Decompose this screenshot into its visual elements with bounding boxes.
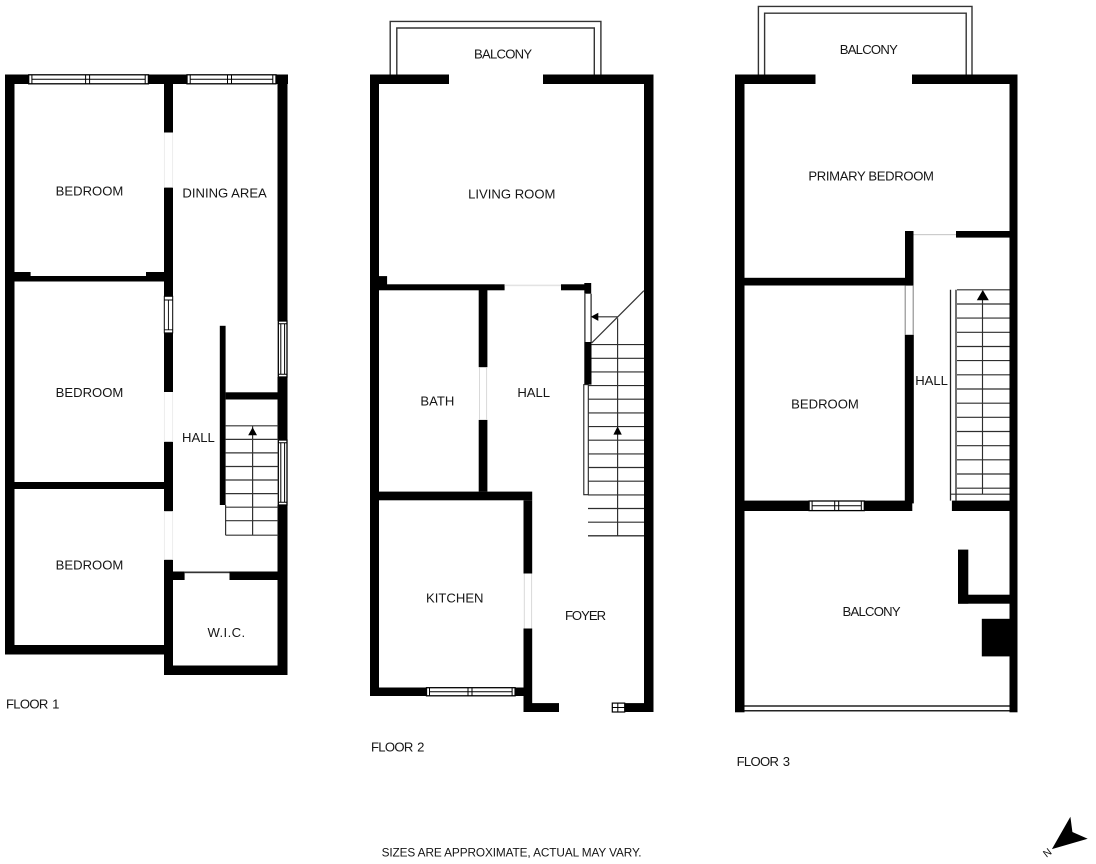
svg-text:BATH: BATH bbox=[420, 394, 454, 409]
svg-text:W.I.C.: W.I.C. bbox=[207, 625, 245, 640]
svg-text:HALL: HALL bbox=[182, 430, 215, 445]
svg-text:BEDROOM: BEDROOM bbox=[56, 385, 124, 400]
svg-text:BALCONY: BALCONY bbox=[843, 604, 901, 619]
svg-text:LIVING ROOM: LIVING ROOM bbox=[468, 187, 555, 202]
svg-text:SIZES ARE APPROXIMATE, ACTUAL: SIZES ARE APPROXIMATE, ACTUAL MAY VARY. bbox=[382, 845, 642, 859]
svg-text:KITCHEN: KITCHEN bbox=[426, 591, 483, 606]
svg-text:BALCONY: BALCONY bbox=[474, 47, 532, 62]
svg-text:BEDROOM: BEDROOM bbox=[791, 396, 859, 411]
svg-text:FLOOR 3: FLOOR 3 bbox=[737, 754, 790, 769]
svg-text:HALL: HALL bbox=[517, 385, 550, 400]
svg-text:BEDROOM: BEDROOM bbox=[56, 557, 124, 572]
svg-text:FLOOR 1: FLOOR 1 bbox=[6, 697, 59, 712]
svg-text:FOYER: FOYER bbox=[565, 608, 606, 623]
svg-text:HALL: HALL bbox=[915, 373, 948, 388]
svg-text:DINING AREA: DINING AREA bbox=[182, 186, 267, 201]
svg-text:PRIMARY BEDROOM: PRIMARY BEDROOM bbox=[808, 169, 933, 184]
svg-text:BEDROOM: BEDROOM bbox=[56, 184, 124, 199]
svg-text:FLOOR 2: FLOOR 2 bbox=[371, 740, 424, 755]
svg-text:BALCONY: BALCONY bbox=[840, 42, 898, 57]
